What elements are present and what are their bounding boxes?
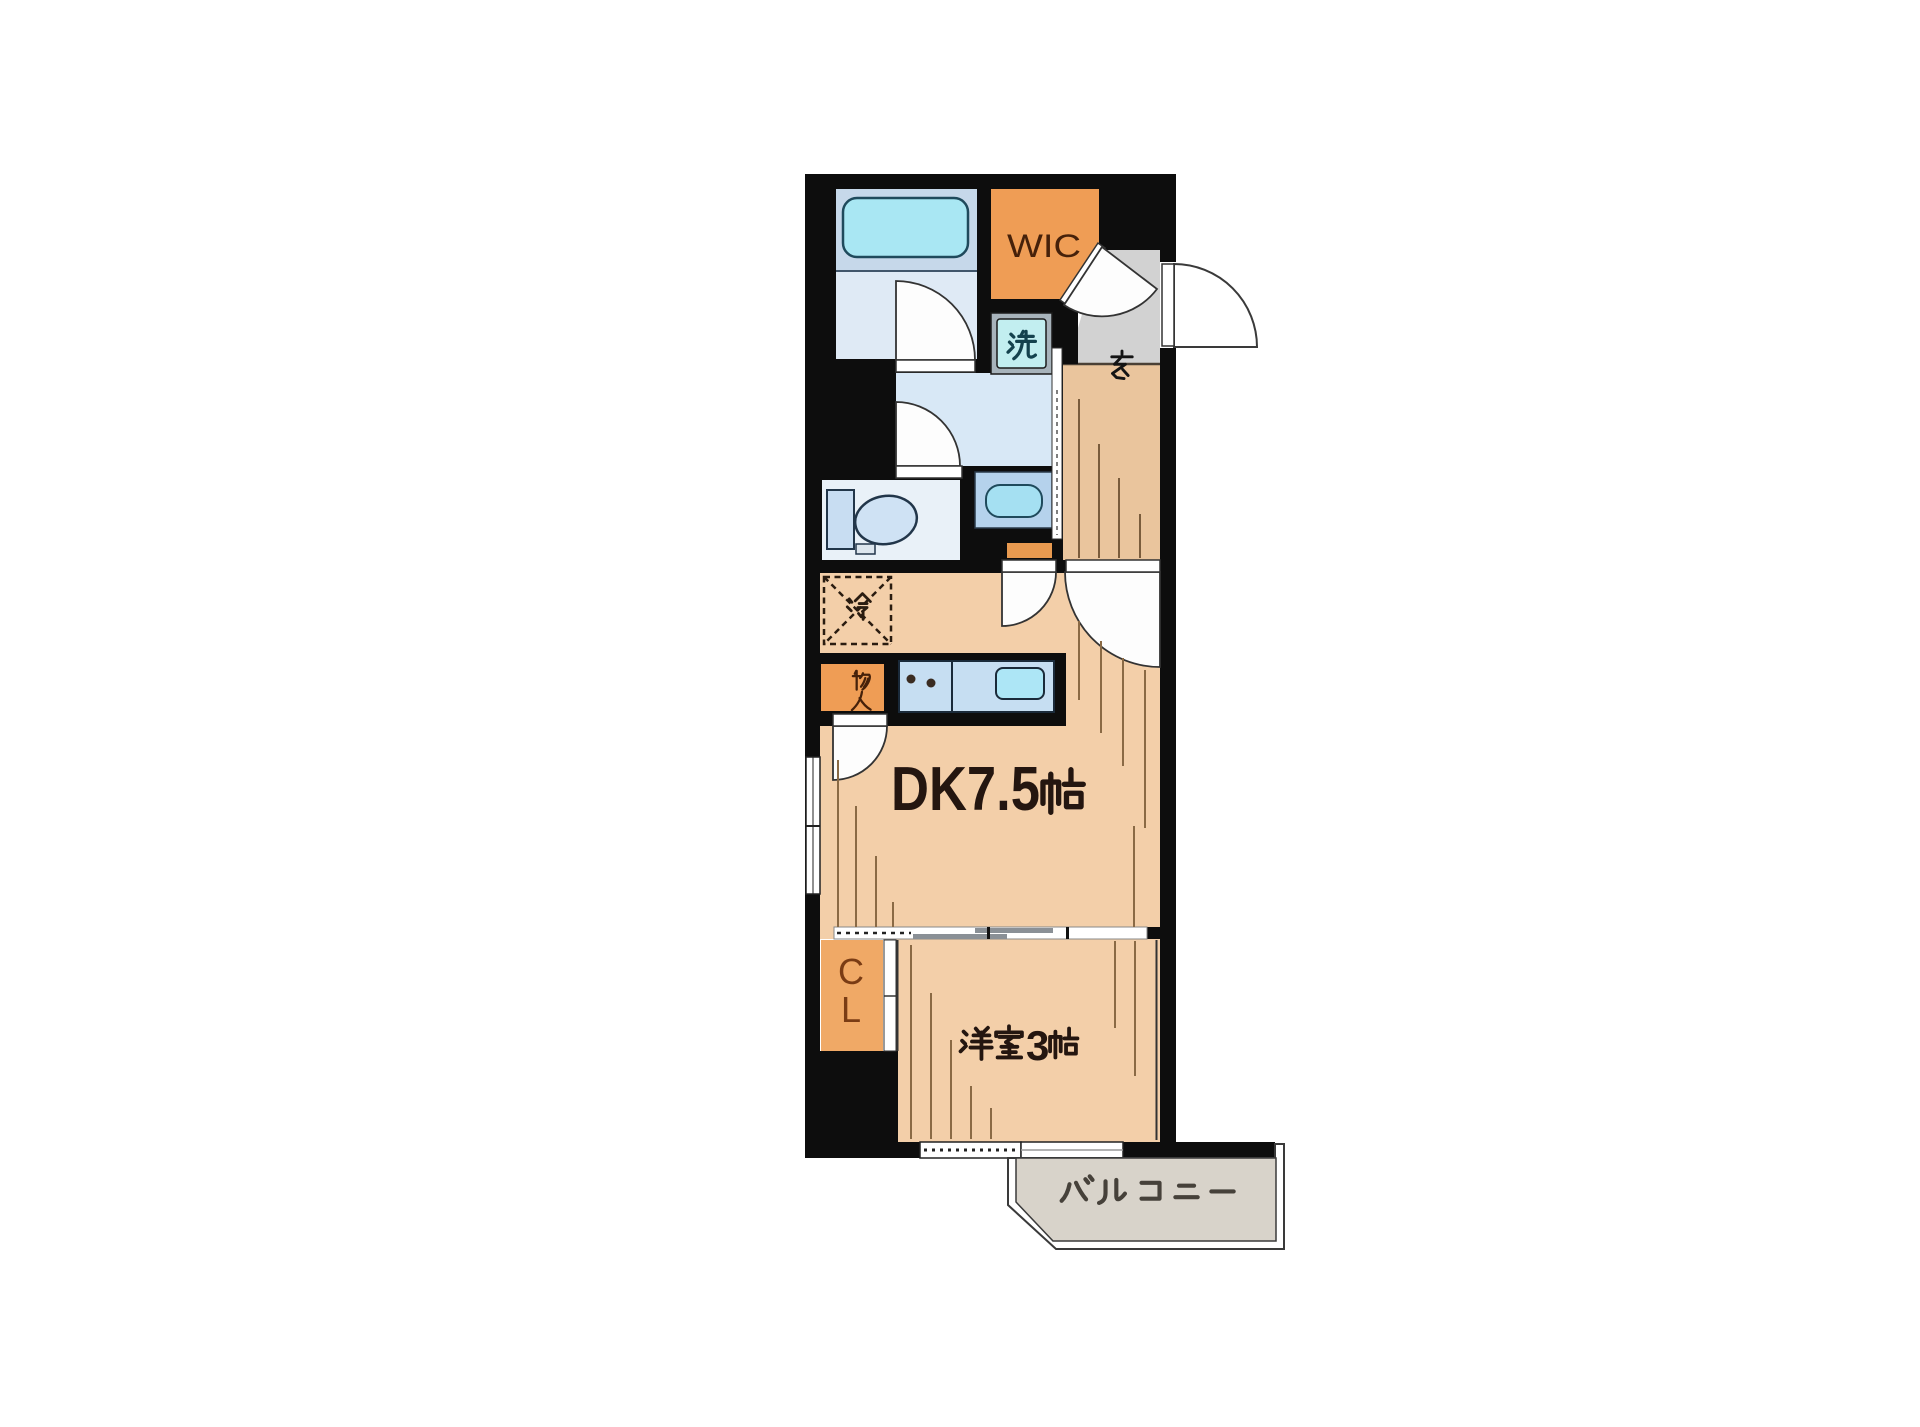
svg-text:C: C <box>838 951 864 992</box>
svg-text:3: 3 <box>1026 1022 1049 1069</box>
svg-text:WIC: WIC <box>1007 228 1081 264</box>
svg-text:L: L <box>841 989 861 1030</box>
svg-text:DK7.5: DK7.5 <box>891 755 1040 824</box>
